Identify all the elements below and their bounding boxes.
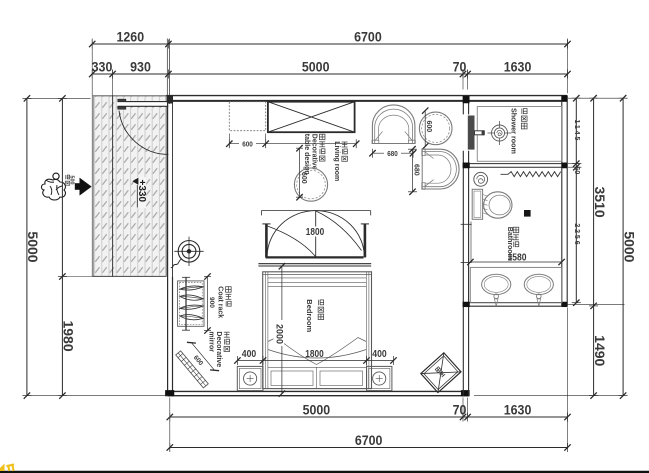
svg-text:600: 600 [300,172,307,184]
svg-text:5000: 5000 [302,59,330,75]
svg-text:Living room: Living room [333,141,340,181]
svg-text:2000: 2000 [275,324,285,344]
svg-text:1630: 1630 [504,402,532,418]
svg-text:Decorative: Decorative [311,134,318,170]
svg-text:1630: 1630 [504,59,532,75]
svg-text:1980: 1980 [61,320,77,351]
svg-text:6700: 6700 [355,432,383,448]
svg-text:60: 60 [573,167,580,175]
svg-text:+330: +330 [136,180,147,203]
svg-text:680: 680 [387,149,398,158]
svg-text:680: 680 [413,164,420,176]
svg-text:1800: 1800 [306,226,325,238]
svg-text:70: 70 [453,59,467,75]
svg-text:930: 930 [130,59,151,75]
svg-text:5000: 5000 [25,231,41,262]
svg-text:1580: 1580 [508,252,527,263]
svg-text:mirror: mirror [208,331,215,352]
svg-text:5000: 5000 [303,402,331,418]
svg-text:1800: 1800 [305,349,324,360]
svg-text:330: 330 [92,59,113,75]
svg-text:Coat rack: Coat rack [217,286,224,318]
svg-text:Shower room: Shower room [510,108,519,154]
svg-text:600: 600 [425,121,432,133]
svg-text:3510: 3510 [592,186,608,217]
svg-text:70: 70 [453,402,467,418]
svg-text:500: 500 [69,176,75,185]
svg-text:1490: 1490 [592,335,608,366]
svg-text:5000: 5000 [621,231,637,262]
svg-text:Decorative: Decorative [215,331,222,367]
svg-text:2256: 2256 [573,223,580,246]
svg-text:1260: 1260 [117,29,145,45]
svg-text:Bedroom: Bedroom [305,299,314,332]
svg-text:600: 600 [242,140,253,149]
svg-text:400: 400 [242,349,257,360]
svg-text:400: 400 [372,349,387,360]
svg-text:6700: 6700 [354,29,382,45]
svg-text:1145: 1145 [573,120,580,143]
svg-text:900: 900 [208,297,215,308]
